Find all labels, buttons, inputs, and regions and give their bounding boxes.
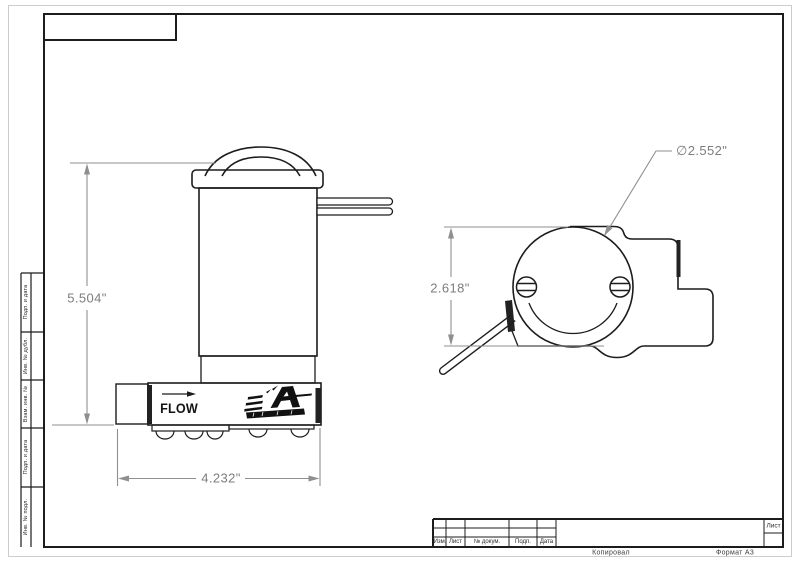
motor-outline-circle: [513, 227, 633, 347]
bracket-right-tab: [677, 240, 681, 277]
flow-label: FLOW: [160, 400, 198, 416]
pump-dome-outer: [205, 147, 316, 176]
title-block-label-list: Лист: [449, 539, 462, 545]
pump-inlet-boss: [116, 384, 148, 424]
outlet-port-bar: [316, 388, 322, 423]
flow-arrow-icon: [162, 391, 196, 397]
screw-right: [610, 277, 630, 297]
bottom-plate: [152, 425, 314, 439]
title-block-label-dokum: № докум.: [474, 539, 500, 545]
terminal-prongs: [317, 198, 393, 215]
inner-body-arc: [529, 303, 617, 333]
side-column-label-inv-dubl: Инв. № дубл.: [23, 338, 29, 374]
pump-side-view: [116, 147, 393, 439]
footer-copied-label: Копировал: [592, 550, 630, 557]
pump-cap-band: [192, 170, 323, 188]
title-block-label-podp: Подп.: [515, 539, 531, 545]
side-column-label-inv-podl: Инв. № подл.: [23, 499, 29, 536]
sheet-cell-label: Лист: [766, 523, 780, 530]
inlet-port-bar: [147, 385, 152, 424]
top-left-stamp-box: [44, 14, 176, 40]
screw-left: [517, 277, 537, 297]
top-height-dim-label: 2.618": [428, 281, 472, 296]
diameter-dim-label: ∅2.552": [674, 143, 729, 159]
title-block-label-data: Дата: [540, 539, 553, 545]
drawing-frame: [21, 14, 783, 547]
side-column-label-podp-data-2: Подп. и дата: [23, 440, 29, 475]
bracket-outline: [517, 227, 713, 358]
page-outer-border: [9, 6, 792, 557]
side-height-dim-label: 5.504": [65, 291, 109, 306]
side-column-label-podp-data-1: Подп. и дата: [23, 285, 29, 320]
footer-format-label: Формат А3: [716, 550, 754, 557]
pump-dome-inner: [222, 157, 300, 176]
side-width-dim-label: 4.232": [199, 471, 243, 486]
aeromotive-logo-icon: [244, 386, 312, 419]
pump-lower-section: [201, 356, 315, 383]
dim-diameter-leader: [604, 151, 672, 236]
pump-top-view: [440, 227, 713, 375]
drawing-canvas: [0, 0, 800, 565]
drawing-sheet: 5.504" 4.232" 2.618" ∅2.552" FLOW Подп. …: [0, 0, 800, 565]
pump-cylinder: [199, 188, 317, 356]
title-block-label-izm: Изм.: [434, 539, 447, 545]
side-column-label-vzam-inv: Взам. инв. №: [23, 386, 29, 422]
